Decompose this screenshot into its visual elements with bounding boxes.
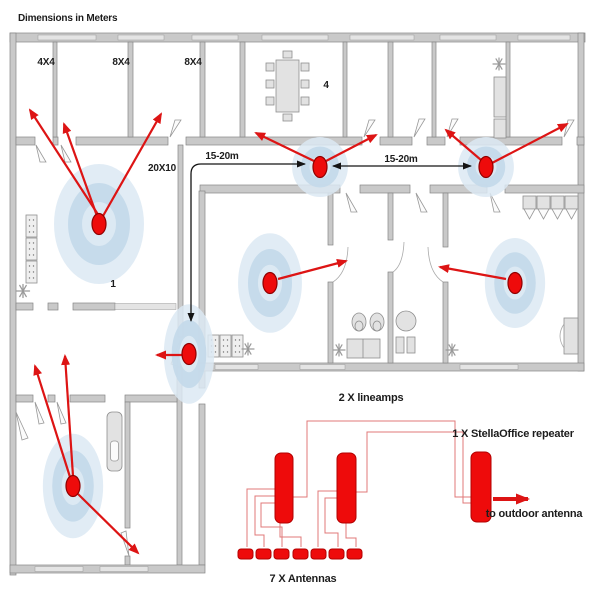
distance-label-2: 15-20m	[384, 154, 418, 165]
cabinet-icon	[17, 215, 38, 298]
antenna-dot	[508, 273, 522, 294]
antenna-pad-icon	[256, 549, 271, 559]
antennas-count-label: 7 X Antennas	[270, 573, 337, 585]
room-label-8x4-a: 8X4	[112, 57, 130, 68]
antenna-dot	[66, 476, 80, 497]
installation-diagram: Dimensions in Meters 4X4 8X4 8X4 4 20X10…	[0, 0, 600, 600]
lineamps-label: 2 X lineamps	[339, 392, 404, 404]
round-table-icon	[396, 311, 458, 356]
conference-table-icon	[266, 51, 309, 121]
bookshelf-icon	[208, 335, 254, 357]
antenna-pad-icon	[274, 549, 289, 559]
repeater-label: 1 X StellaOffice repeater	[452, 428, 574, 440]
coverage-rings	[43, 137, 545, 538]
radiator-icon	[523, 196, 578, 219]
antenna-dot	[263, 273, 277, 294]
lineamp-icon	[337, 453, 356, 523]
room-label-8x4-b: 8X4	[184, 57, 202, 68]
antenna-pad-icon	[238, 549, 253, 559]
equipment-schematic: 2 X lineamps 1 X StellaOffice repeater t…	[238, 392, 583, 585]
sliding-door-icon	[107, 412, 122, 471]
desk-icon	[560, 318, 578, 354]
antenna-pad-icon	[329, 549, 344, 559]
distance-label-1: 15-20m	[205, 151, 239, 162]
outdoor-antenna-label: to outdoor antenna	[486, 508, 584, 520]
antenna-pad-icon	[293, 549, 308, 559]
left-wall	[10, 33, 16, 575]
antenna-pad-icon	[311, 549, 326, 559]
window-strips	[38, 35, 570, 40]
antenna-pads	[238, 549, 362, 559]
antenna-dot	[182, 344, 196, 365]
room-label-20x10: 20X10	[148, 163, 177, 174]
lounge-chairs-icon	[333, 313, 384, 358]
floor-plan: Dimensions in Meters 4X4 8X4 8X4 4 20X10…	[10, 13, 585, 575]
fridge-icon	[493, 58, 506, 138]
page-title: Dimensions in Meters	[18, 13, 118, 24]
lineamp-icon	[275, 453, 293, 523]
antenna-pad-icon	[347, 549, 362, 559]
antenna-dot	[92, 214, 106, 235]
room-label-4x4: 4X4	[37, 57, 55, 68]
zone-label-1: 1	[110, 279, 116, 290]
antenna-dot	[313, 157, 327, 178]
room-label-meeting: 4	[323, 80, 329, 91]
antenna-dot	[479, 157, 493, 178]
right-wall	[578, 33, 584, 371]
